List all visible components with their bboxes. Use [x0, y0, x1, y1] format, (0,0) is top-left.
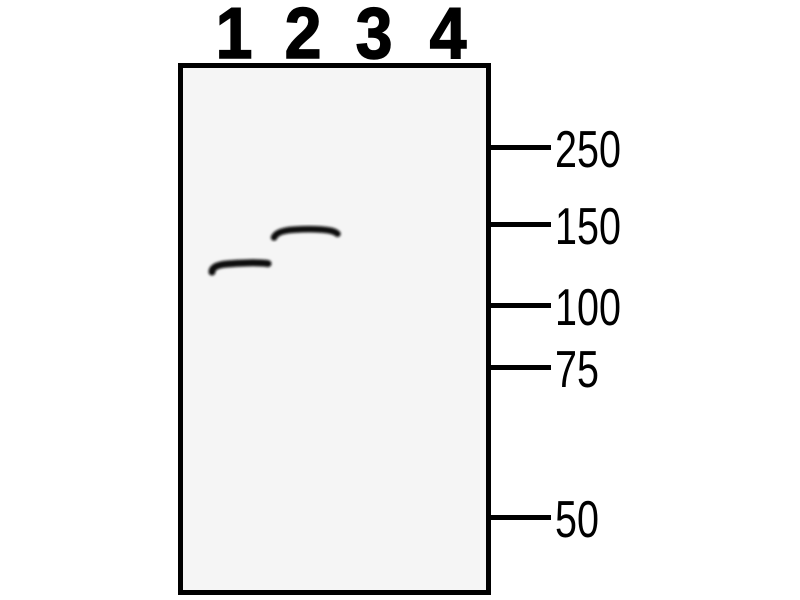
blot-membrane — [178, 63, 491, 595]
lane-label-2: 2 — [285, 0, 322, 70]
mw-label-100: 100 — [555, 282, 621, 334]
tick-mark-75 — [488, 365, 551, 370]
mw-label-75: 75 — [555, 344, 599, 396]
lane-label-4: 4 — [430, 0, 467, 70]
lane-label-1: 1 — [216, 0, 253, 70]
lane-label-3: 3 — [356, 0, 393, 70]
mw-label-50: 50 — [555, 494, 599, 546]
tick-mark-50 — [488, 515, 551, 520]
western-blot-figure: 1 2 3 4 250 150 100 75 50 — [0, 0, 800, 600]
tick-mark-250 — [488, 145, 551, 150]
tick-mark-100 — [488, 303, 551, 308]
mw-label-250: 250 — [555, 124, 621, 176]
tick-mark-150 — [488, 222, 551, 227]
mw-label-150: 150 — [555, 201, 621, 253]
